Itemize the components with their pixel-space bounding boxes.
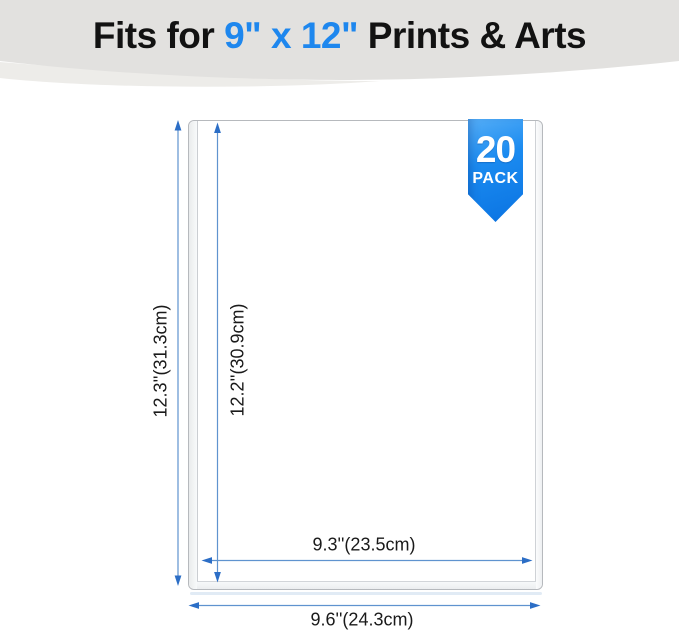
outer-height-label: 12.3''(31.3cm)	[151, 305, 172, 418]
sleeve-right-seam	[535, 121, 542, 589]
product-diagram: Fits for 9" x 12" Prints & Arts 20 PACK	[0, 0, 679, 632]
sleeve-shadow	[190, 592, 542, 595]
title-suffix: Prints & Arts	[358, 15, 586, 56]
inner-height-label: 12.2''(30.9cm)	[228, 304, 249, 417]
sleeve-bottom-seam	[197, 581, 536, 589]
page-title: Fits for 9" x 12" Prints & Arts	[0, 14, 679, 58]
outer-height-arrow	[175, 120, 182, 586]
pack-label: PACK	[472, 171, 518, 187]
title-size-highlight: 9" x 12"	[224, 15, 358, 56]
outer-width-arrow	[189, 602, 541, 609]
pack-count: 20	[476, 131, 515, 169]
inner-width-label: 9.3''(23.5cm)	[313, 535, 416, 556]
sleeve-left-seam	[189, 121, 198, 589]
title-prefix: Fits for	[93, 15, 224, 56]
outer-width-label: 9.6''(24.3cm)	[311, 610, 414, 631]
